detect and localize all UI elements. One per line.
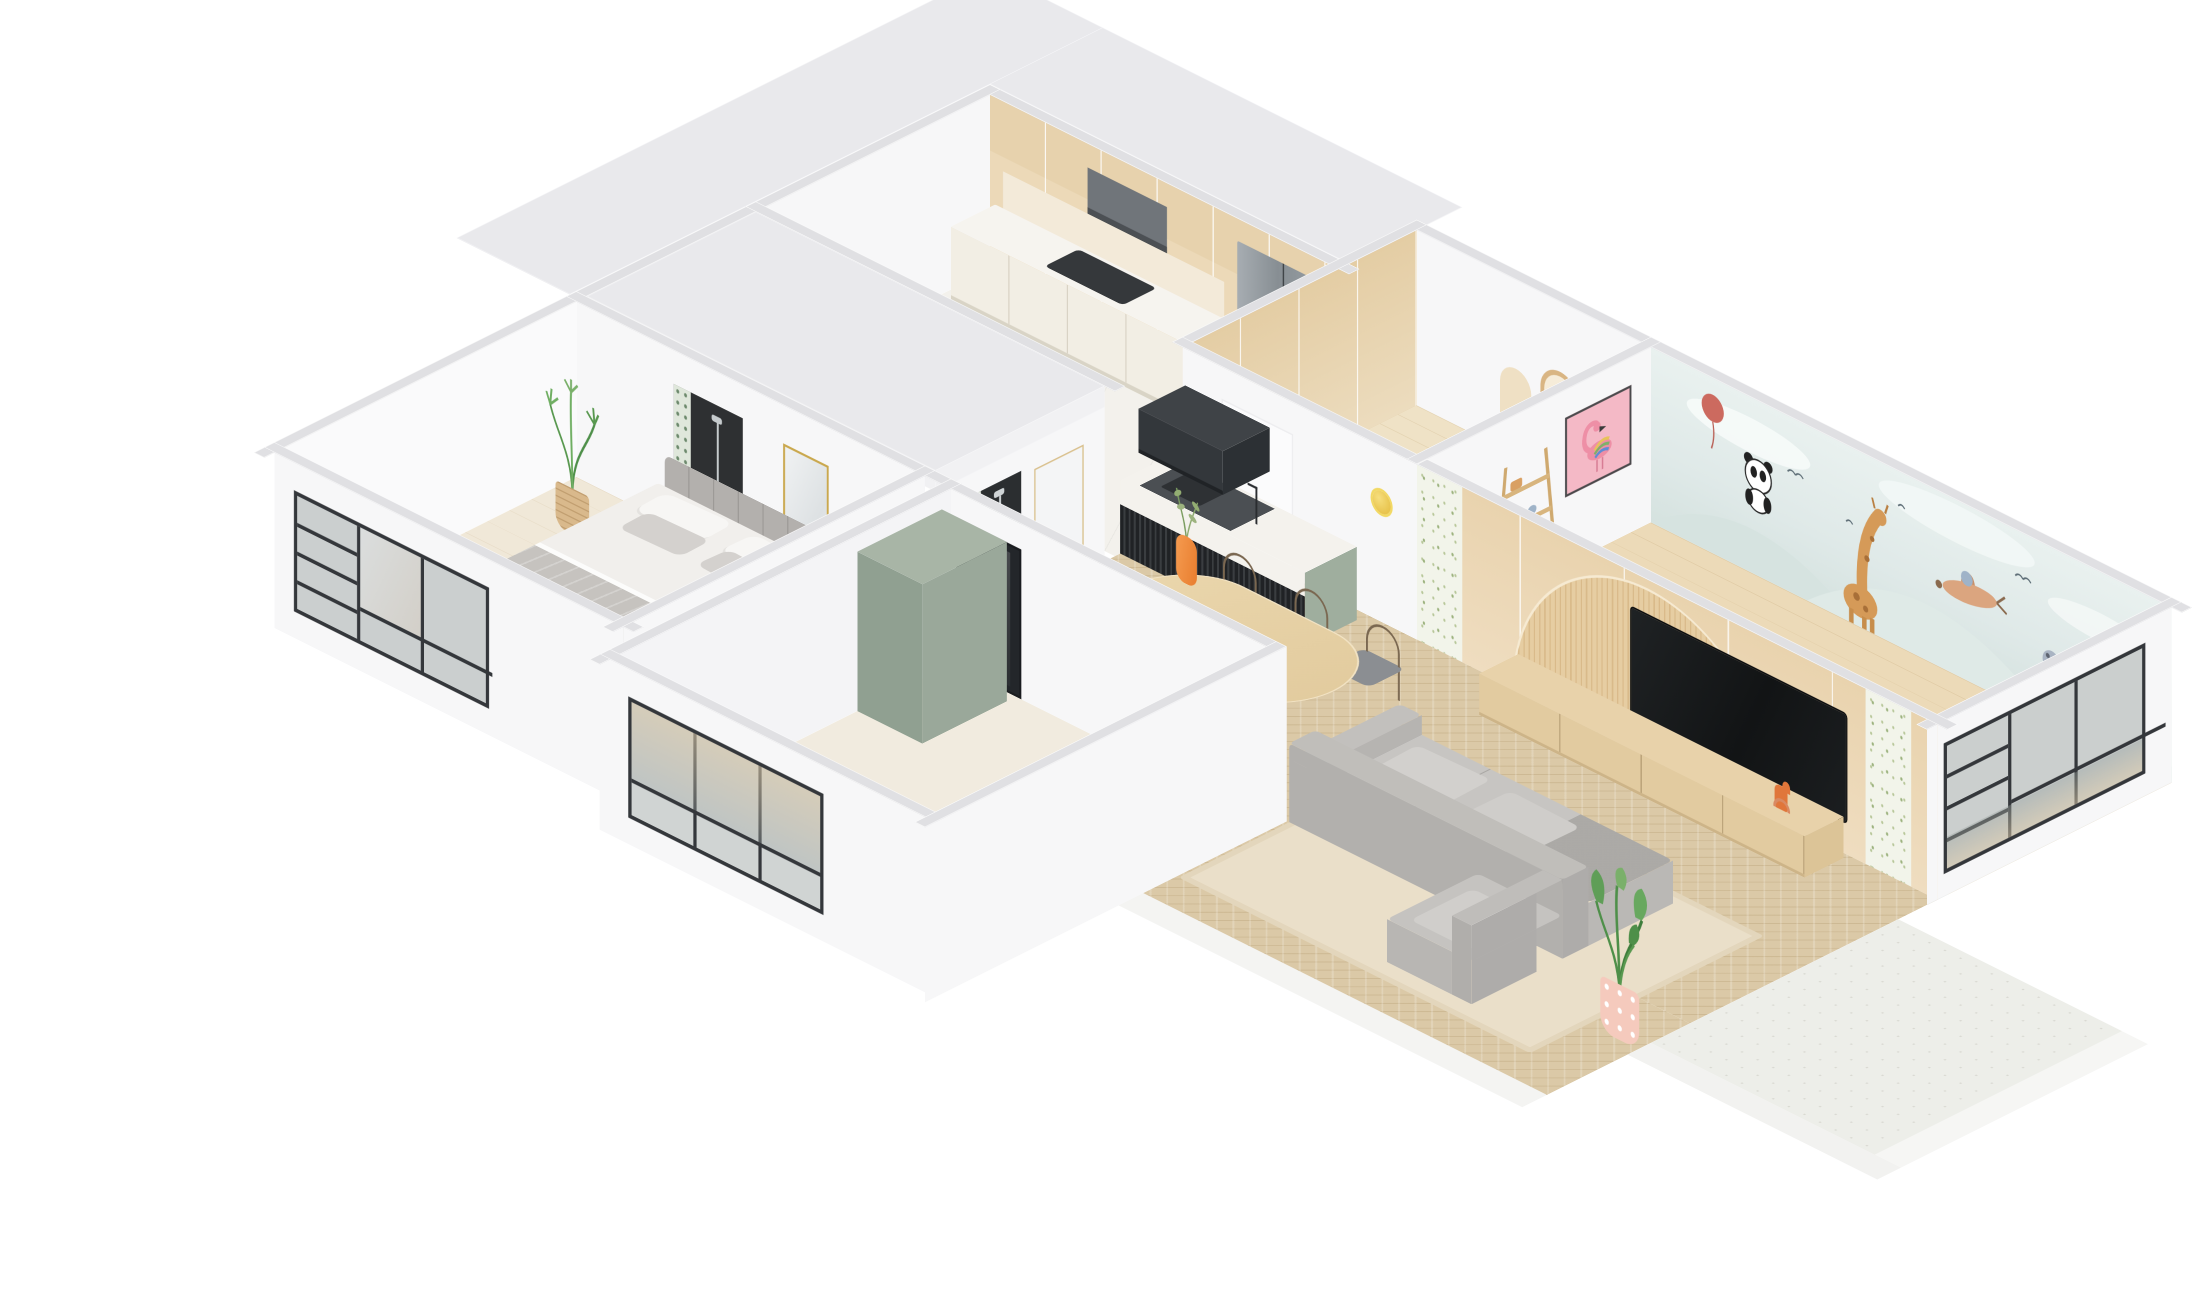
sofa-back-side (1562, 867, 1588, 960)
bamboo-wallpaper-strip (1866, 689, 1912, 887)
window-mullion (1947, 744, 2008, 779)
strelitzia-plant (1588, 849, 1650, 1056)
rendered-floorplan-canvas (0, 0, 2200, 1293)
bamboo-wallpaper-strip (1417, 464, 1463, 662)
faucet-icon (1255, 486, 1257, 524)
palm-leaves-icon (545, 360, 600, 507)
window-mullion (1947, 776, 2008, 811)
window-mullion (297, 552, 357, 586)
flamingo-artwork (1565, 385, 1631, 498)
faucet-icon (1248, 482, 1258, 489)
window-glass (360, 527, 421, 637)
window-mullion (360, 607, 492, 677)
brass-sconce-icon (1373, 487, 1391, 518)
flamingo-icon (1567, 388, 1629, 494)
window-mullion (297, 523, 357, 557)
window-mullion (421, 558, 424, 673)
sage-wardrobe-front (857, 552, 922, 744)
sofa-chaise-back-front (1452, 916, 1472, 1005)
window-mullion (297, 580, 357, 614)
